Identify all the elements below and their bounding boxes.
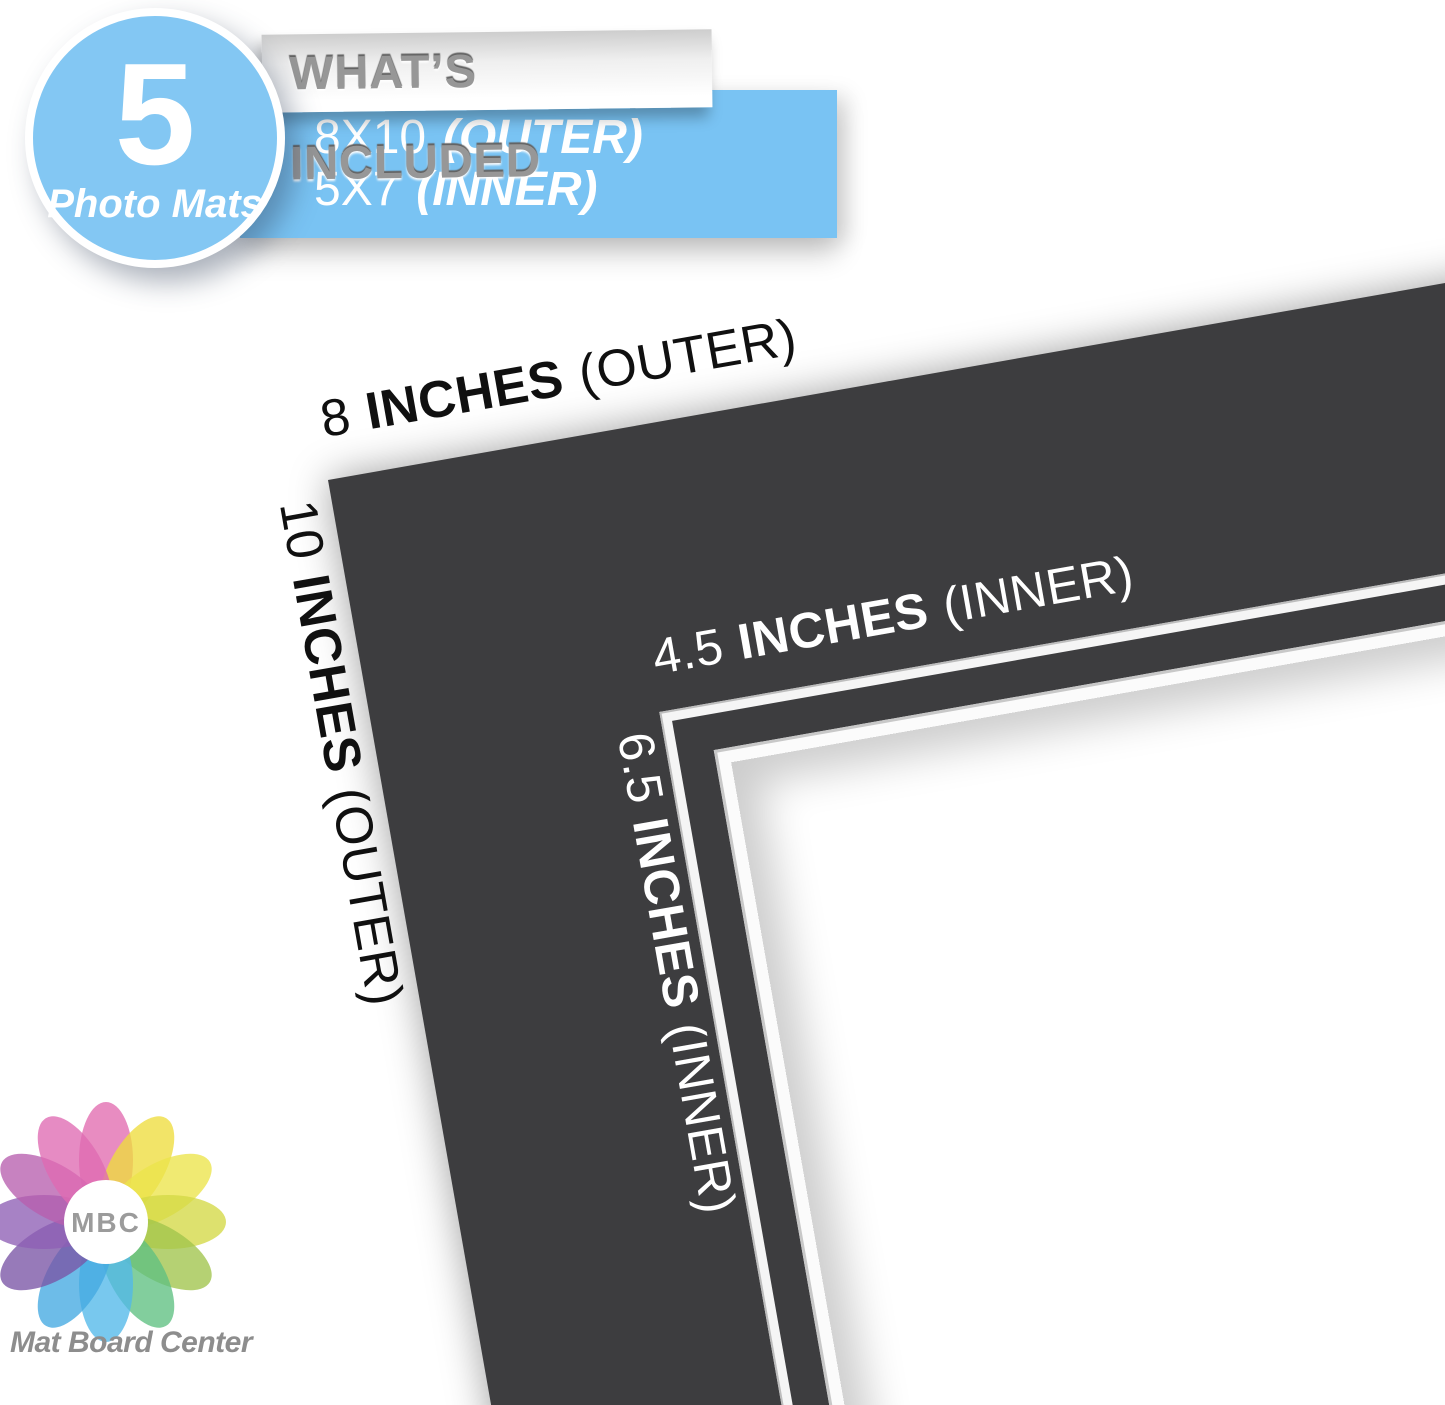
dimension-value: 8: [316, 387, 355, 449]
logo-monogram: MBC: [71, 1207, 141, 1238]
inner-mat-reveal: [672, 385, 1445, 1405]
flower-logo-icon: MBC: [0, 1098, 232, 1348]
product-image: 8INCHES(OUTER) 10INCHES(OUTER) 4.5INCHES…: [0, 0, 1445, 1405]
whats-included-ribbon: WHAT’S INCLUDED: [262, 29, 713, 112]
badge-count: 5: [115, 49, 196, 180]
logo-wordmark: Mat Board Center: [10, 1326, 252, 1360]
photo-mats-count-badge: 5 Photo Mats: [25, 8, 285, 268]
dimension-value: 6.5: [607, 728, 674, 808]
dimension-note: (OUTER): [574, 308, 801, 403]
badge-label: Photo Mats: [47, 182, 263, 227]
dimension-value: 4.5: [648, 618, 728, 685]
outer-mat-bevel: [659, 380, 1445, 1405]
dimension-unit: INCHES: [361, 349, 568, 441]
mat-board: [328, 118, 1445, 1405]
dimension-value: 10: [268, 496, 335, 564]
